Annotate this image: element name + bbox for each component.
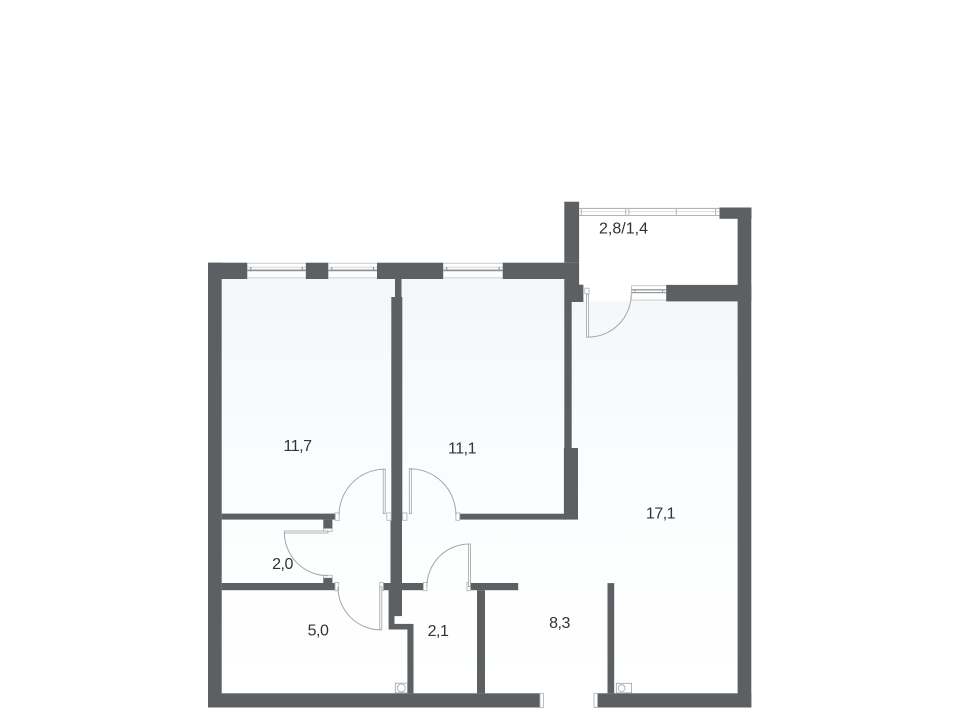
svg-text:17,1: 17,1 (646, 506, 676, 523)
svg-text:2,0: 2,0 (272, 556, 293, 573)
svg-text:2,1: 2,1 (428, 623, 449, 640)
svg-text:2,8/1,4: 2,8/1,4 (599, 221, 648, 238)
svg-text:8,3: 8,3 (549, 615, 570, 632)
svg-text:11,1: 11,1 (448, 440, 477, 457)
svg-text:5,0: 5,0 (308, 622, 329, 639)
svg-text:11,7: 11,7 (284, 438, 313, 455)
